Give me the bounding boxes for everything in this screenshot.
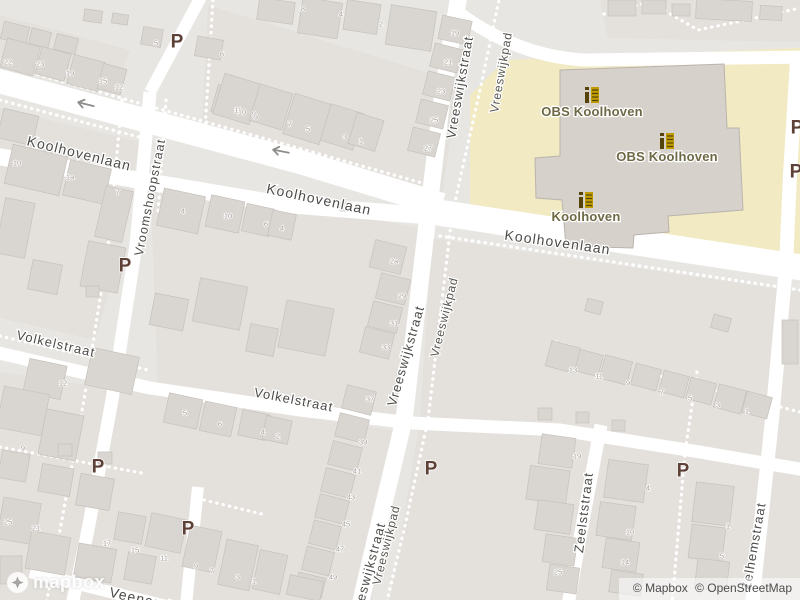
mapbox-logo[interactable]: mapbox (6, 571, 105, 594)
house-number: 41 (353, 467, 361, 476)
building (672, 4, 690, 16)
building (192, 278, 248, 330)
building (149, 293, 188, 331)
house-number: 5 (154, 39, 158, 48)
building (0, 450, 30, 482)
building (760, 5, 783, 20)
building (278, 300, 334, 356)
house-number: 5 (720, 552, 724, 561)
house-number: 6 (264, 220, 268, 229)
building (538, 434, 576, 468)
building (124, 552, 156, 584)
house-number: 7 (116, 188, 120, 197)
house-number: 3 (236, 573, 240, 582)
building (604, 459, 649, 502)
house-number: 37 (366, 395, 374, 404)
house-number: 9 (254, 113, 258, 122)
house-number: 22 (4, 58, 12, 67)
house-number: 7 (288, 120, 292, 129)
building (83, 9, 102, 23)
house-number: 9 (194, 562, 198, 571)
parking-icon: P (790, 162, 800, 183)
map: 22231915125611984219212325271097531101a7… (0, 0, 800, 600)
house-number: 4 (646, 484, 650, 493)
house-number: 11 (160, 554, 168, 563)
building (75, 473, 114, 510)
school-icon (579, 192, 593, 208)
house-number: 11 (595, 372, 603, 381)
building (782, 320, 798, 364)
attribution-osm-link[interactable]: © OpenStreetMap (695, 581, 792, 595)
house-number: 4 (339, 10, 343, 19)
parking-icon: P (92, 457, 105, 478)
building (141, 26, 164, 47)
house-number: 5 (306, 125, 310, 134)
house-number: 19 (451, 29, 459, 38)
house-number: 49 (329, 573, 337, 582)
house-number: 1a (66, 173, 75, 182)
house-number: 1 (726, 522, 730, 531)
mapbox-logo-text: mapbox (33, 572, 105, 593)
building (27, 259, 62, 294)
house-number: 4 (181, 207, 185, 216)
house-number: 14 (621, 558, 629, 567)
house-number: 33 (382, 343, 390, 352)
building (546, 564, 579, 594)
house-number: 10 (238, 108, 246, 117)
parking-icon: P (791, 118, 800, 139)
house-number: 9 (21, 444, 25, 453)
building (246, 324, 279, 357)
house-number: 23 (437, 87, 445, 96)
house-number: 19 (66, 69, 74, 78)
building (38, 463, 74, 496)
house-number: 4 (280, 224, 284, 233)
house-number: 10 (224, 212, 232, 221)
building (696, 0, 753, 21)
house-number: 6 (218, 420, 222, 429)
house-number: 25 (4, 518, 12, 527)
building (526, 465, 570, 504)
building (612, 420, 625, 431)
house-number: 2 (276, 432, 280, 441)
house-number: 45 (342, 520, 350, 529)
house-number: 21 (32, 524, 40, 533)
school-icon (660, 133, 674, 149)
building (0, 386, 50, 436)
building (534, 500, 574, 535)
school-icon (585, 87, 599, 103)
house-number: 4 (261, 428, 265, 437)
house-number: 29 (398, 292, 406, 301)
house-number: 17 (103, 539, 111, 548)
building (111, 13, 128, 25)
house-number: 19 (573, 452, 581, 461)
house-number: 23 (36, 60, 44, 69)
house-number: 47 (336, 545, 344, 554)
house-number: 12 (115, 83, 123, 92)
house-number: 2a (390, 257, 399, 266)
house-number: 7 (660, 388, 664, 397)
map-canvas[interactable]: 22231915125611984219212325271097531101a7… (0, 0, 800, 600)
house-number: 9 (626, 379, 630, 388)
house-number: 21 (444, 58, 452, 67)
attribution-bar: © Mapbox © OpenStreetMap (619, 578, 800, 600)
building (385, 5, 437, 52)
parking-icon: P (119, 256, 132, 277)
parking-icon: P (425, 459, 438, 480)
house-number: 13 (569, 366, 577, 375)
house-number: 2 (379, 20, 383, 29)
building (602, 538, 640, 572)
parking-icon: P (171, 32, 184, 53)
house-number: 27 (424, 144, 432, 153)
house-number: 6 (220, 50, 224, 59)
house-number: 1 (252, 577, 256, 586)
poi-label: OBS Koolhoven (541, 104, 643, 119)
house-number: 31 (390, 319, 398, 328)
house-number: 25 (430, 116, 438, 125)
building (642, 0, 666, 14)
house-number: 10 (13, 159, 21, 168)
building (608, 0, 636, 16)
building (343, 0, 381, 34)
house-number: 12 (59, 379, 67, 388)
house-number: 3 (716, 401, 720, 410)
house-number: 1 (745, 407, 749, 416)
poi-label: Koolhoven (552, 209, 621, 224)
parking-icon: P (677, 461, 690, 482)
building (692, 482, 735, 526)
building (114, 512, 146, 544)
poi-label: OBS Koolhoven (616, 149, 718, 164)
building (25, 531, 71, 575)
building (58, 444, 72, 456)
house-number: 5 (183, 409, 187, 418)
house-number: 15 (99, 77, 107, 86)
parking-icon: P (182, 519, 195, 540)
house-number: 8 (301, 5, 305, 14)
house-number: 39 (359, 438, 367, 447)
attribution-mapbox-link[interactable]: © Mapbox (633, 581, 688, 595)
house-number: 7 (210, 567, 214, 576)
house-number: 3 (343, 133, 347, 142)
house-number: 15 (131, 546, 139, 555)
house-number: 5 (688, 394, 692, 403)
building (86, 286, 99, 297)
mapbox-logo-icon (6, 571, 29, 594)
house-number: 43 (347, 493, 355, 502)
house-number: 25 (554, 568, 562, 577)
house-number: 10 (626, 528, 634, 537)
house-number: 1 (359, 137, 363, 146)
building (576, 412, 589, 423)
building (538, 408, 552, 420)
